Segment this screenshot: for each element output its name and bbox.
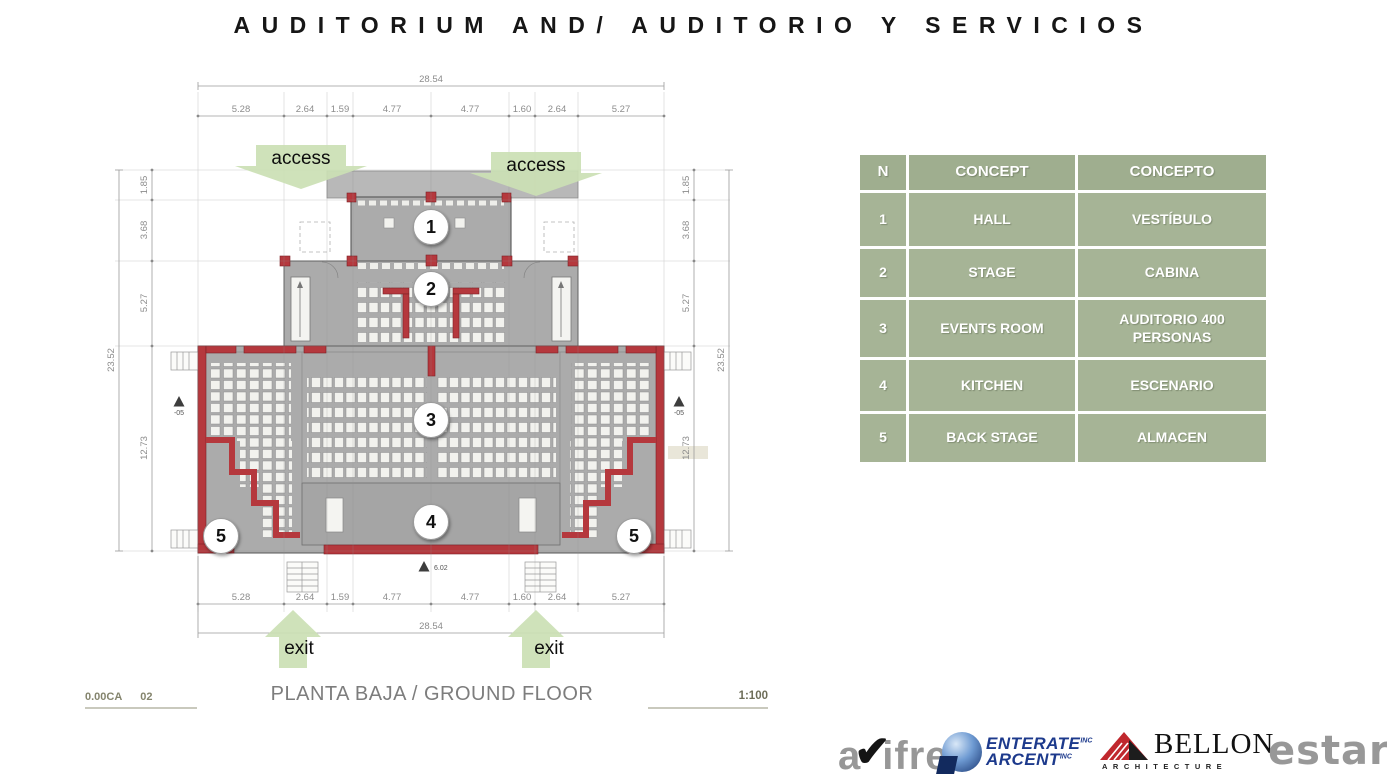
enterate-arcent-logo: ENTERATEINC ARCENTINC	[942, 732, 1092, 772]
dim-top: 2.64	[296, 104, 315, 115]
legend-table: N CONCEPT CONCEPTO 1 HALL VESTÍBULO 2 ST…	[860, 155, 1266, 462]
avifre-logo: a✔ifre	[838, 730, 949, 780]
room-marker-5-left: 5	[216, 526, 226, 546]
legend-cell: VESTÍBULO	[1078, 193, 1266, 246]
dim-total-left: 23.52	[106, 348, 117, 372]
enterate-line1-inc: INC	[1080, 737, 1092, 744]
dim-top: 1.59	[331, 104, 350, 115]
dim-bottom: 5.27	[612, 592, 631, 603]
scale-rule	[648, 707, 768, 709]
room-marker-4: 4	[426, 512, 436, 532]
plan-caption: PLANTA BAJA / GROUND FLOOR	[232, 683, 632, 706]
dim-top: 5.27	[612, 104, 631, 115]
legend-cell: 5	[860, 414, 906, 462]
room-marker-3: 3	[426, 410, 436, 430]
legend-cell: 1	[860, 193, 906, 246]
exit-label-left: exit	[284, 638, 314, 659]
dim-bottom: 4.77	[383, 592, 402, 603]
bellon-subtitle: ARCHITECTURE	[1102, 762, 1270, 771]
logo-strip: a✔ifre ENTERATEINC ARCENTINC BELLON ARCH…	[0, 724, 1387, 780]
dim-right: 5.27	[681, 294, 692, 313]
legend-header-n: N	[860, 155, 906, 190]
level-left: -05	[174, 410, 184, 417]
room-marker-1: 1	[426, 217, 436, 237]
globe-icon	[942, 732, 982, 772]
sheet-note: 0.00CA02	[85, 691, 171, 703]
dim-top: 4.77	[383, 104, 402, 115]
dim-bottom: 1.60	[513, 592, 532, 603]
bellon-logo: BELLON ARCHITECTURE	[1098, 730, 1270, 776]
dim-bottom: 2.64	[548, 592, 567, 603]
level-right: -05	[674, 410, 684, 417]
access-label-right: access	[506, 155, 565, 176]
dim-bottom: 5.28	[232, 592, 251, 603]
floor-plan: 28.54 5.28 2.64 1.59 4.77 4.77 1.60 2.64…	[50, 58, 795, 690]
dim-top: 2.64	[548, 104, 567, 115]
exit-label-right: exit	[534, 638, 564, 659]
dim-left: 3.68	[139, 221, 150, 240]
scale-note: 1:100	[648, 690, 768, 702]
legend-cell: HALL	[909, 193, 1075, 246]
legend-cell: 3	[860, 300, 906, 357]
enterate-text: ENTERATEINC ARCENTINC	[986, 736, 1092, 768]
bellon-name: BELLON	[1154, 728, 1274, 761]
dim-right: 3.68	[681, 221, 692, 240]
level-bottom: 6.02	[434, 565, 448, 572]
legend-cell: STAGE	[909, 249, 1075, 297]
dim-left: 12.73	[139, 436, 150, 460]
dim-right: 1.85	[681, 176, 692, 195]
estar-logo: estar	[1268, 728, 1387, 774]
room-marker-2: 2	[426, 279, 436, 299]
dim-left: 5.27	[139, 294, 150, 313]
legend-header-concepto: CONCEPTO	[1078, 155, 1266, 190]
legend-cell: ESCENARIO	[1078, 360, 1266, 411]
dim-right: 12.73	[681, 436, 692, 460]
dim-total-top: 28.54	[419, 74, 443, 85]
dim-total-bottom: 28.54	[419, 621, 443, 632]
dim-left: 1.85	[139, 176, 150, 195]
page-title: AUDITORIUM AND/ AUDITORIO Y SERVICIOS	[0, 12, 1387, 39]
legend-cell: 2	[860, 249, 906, 297]
roof-icon	[1098, 730, 1152, 762]
legend-cell: CABINA	[1078, 249, 1266, 297]
dim-bottom: 1.59	[331, 592, 350, 603]
dim-top: 4.77	[461, 104, 480, 115]
legend-cell: KITCHEN	[909, 360, 1075, 411]
enterate-line2-inc: INC	[1060, 753, 1072, 760]
legend-header-concept: CONCEPT	[909, 155, 1075, 190]
legend-cell: AUDITORIO 400 PERSONAS	[1078, 300, 1266, 357]
room-marker-5-right: 5	[629, 526, 639, 546]
checkmark-icon: ✔	[854, 728, 891, 776]
sheet-note-rule	[85, 707, 197, 709]
dim-top: 1.60	[513, 104, 532, 115]
access-label-left: access	[271, 148, 330, 169]
legend-cell: EVENTS ROOM	[909, 300, 1075, 357]
sheet-number: 02	[140, 691, 152, 703]
dim-bottom: 2.64	[296, 592, 315, 603]
dim-bottom: 4.77	[461, 592, 480, 603]
dim-top: 5.28	[232, 104, 251, 115]
sheet-code: 0.00CA	[85, 691, 122, 703]
legend-cell: BACK STAGE	[909, 414, 1075, 462]
legend-cell: 4	[860, 360, 906, 411]
dim-total-right: 23.52	[716, 348, 727, 372]
enterate-line2: ARCENT	[986, 750, 1060, 769]
legend-cell: ALMACEN	[1078, 414, 1266, 462]
